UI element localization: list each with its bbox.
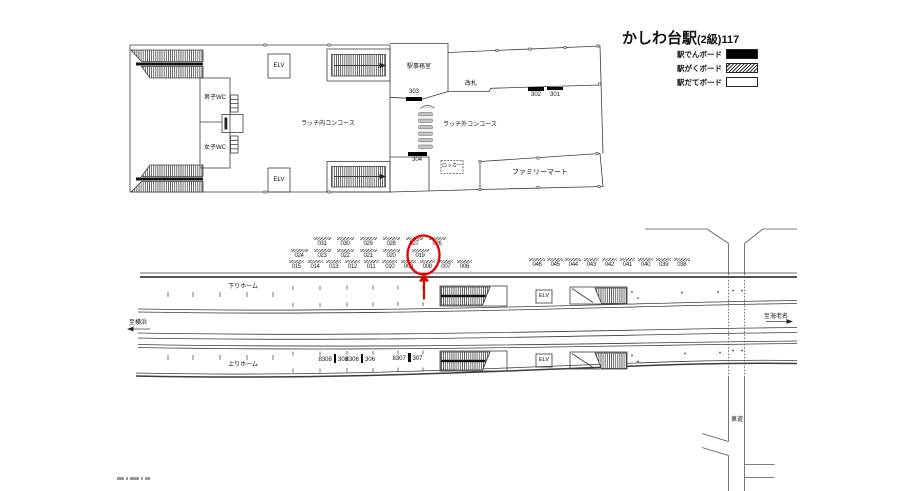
board-row-top: 031 030 029 028 027 026 — [311, 237, 449, 247]
hatched-board-swatch — [726, 63, 758, 73]
ad-board: 006 — [455, 260, 474, 270]
den-board-vertical — [361, 354, 364, 363]
den-board-304-label: 304 — [412, 157, 422, 163]
ad-board: 028 — [380, 237, 403, 247]
legend: 駅でんボード 駅がくボード 駅だてボード — [620, 47, 758, 89]
ad-board: 038 — [673, 258, 691, 268]
pillar-ticks — [168, 351, 423, 373]
station-name: かしわ台駅 — [622, 30, 697, 47]
ad-board: 010 — [380, 260, 399, 270]
legend-label: 駅がくボード — [677, 63, 722, 74]
ad-board: 012 — [343, 260, 362, 270]
ad-board: 011 — [362, 260, 381, 270]
up-platform-edge — [138, 341, 797, 346]
pillar-board-label: 8308 — [319, 357, 332, 363]
up-platform-edge — [138, 344, 797, 349]
escalator-icon — [570, 287, 627, 304]
open-board-swatch — [726, 77, 758, 87]
den-board-303-label: 303 — [409, 89, 419, 95]
to-ebina-arrow — [766, 319, 793, 324]
den-board-304 — [408, 152, 427, 156]
stairs-icon — [327, 49, 390, 81]
pillar-ticks — [168, 286, 423, 308]
ad-board: 043 — [582, 258, 600, 268]
ad-board: 030 — [334, 237, 357, 247]
pillar-board-label: 8306 — [346, 357, 359, 363]
board-row-middle: 024 023 022 021 020 019 — [288, 249, 432, 259]
ad-board: 008 — [418, 260, 437, 270]
pillar-board-label: 307 — [413, 356, 423, 362]
ad-board: 026 — [426, 237, 449, 247]
ad-board: 007 — [437, 260, 456, 270]
escalator-icon — [570, 352, 627, 369]
inner-concourse-label: ラッチ内コンコース — [301, 121, 355, 127]
pillar-dots — [631, 290, 743, 363]
womens-wc-label: 女子WC — [204, 145, 226, 151]
ad-board-highlighted: 019 — [409, 249, 432, 259]
legend-item: 駅でんボード — [620, 47, 758, 61]
elevator-label: ELV — [274, 63, 285, 69]
wc-rooms — [200, 78, 243, 168]
ad-board: 009 — [399, 260, 418, 270]
solid-board-swatch — [726, 49, 758, 59]
ad-board: 027 — [403, 237, 426, 247]
ad-board: 024 — [288, 249, 311, 259]
elevator-label: ELV — [539, 358, 549, 364]
stairs-icon — [327, 162, 390, 193]
ad-board: 046 — [528, 258, 546, 268]
to-ebina-label: 至海老名 — [764, 314, 788, 320]
down-platform-label: 下りホーム — [228, 284, 258, 290]
board-row-bottom: 015 014 013 012 011 010 009 008 007 006 — [287, 260, 474, 270]
track-line — [138, 333, 797, 340]
locker-label: ロッカー — [442, 164, 462, 169]
ad-board: 015 — [287, 260, 306, 270]
up-platform-label: 上りホーム — [228, 362, 258, 368]
familymart-label: ファミリーマート — [512, 169, 568, 176]
outer-concourse-outline — [448, 46, 603, 154]
den-board-vertical — [408, 353, 411, 362]
den-board-303 — [406, 97, 422, 101]
stairs-icon — [440, 286, 507, 306]
ad-board: 029 — [357, 237, 380, 247]
den-board-302 — [528, 87, 544, 91]
ad-board: 044 — [564, 258, 582, 268]
outer-concourse-label: ラッチ外コンコース — [443, 122, 497, 128]
roadway-label: 車道 — [731, 417, 743, 423]
ad-board: 040 — [637, 258, 655, 268]
to-yokohama-arrow — [127, 327, 150, 332]
elevator-label: ELV — [274, 177, 285, 183]
ad-board: 045 — [546, 258, 564, 268]
legend-item: 駅だてボード — [620, 75, 758, 89]
pillar-board-label: 306 — [365, 357, 375, 363]
ad-board: 013 — [324, 260, 343, 270]
lower-room-wall — [390, 157, 480, 192]
ad-board: 020 — [380, 249, 403, 259]
fine-print — [117, 477, 150, 480]
legend-label: 駅だてボード — [677, 77, 722, 88]
station-office-label: 駅事務室 — [407, 64, 431, 70]
to-yokohama-label: 至横浜 — [129, 320, 147, 326]
station-grade: (2級)117 — [697, 34, 739, 46]
map-linework — [0, 0, 919, 491]
ad-board: 039 — [655, 258, 673, 268]
den-board-302-label: 302 — [531, 92, 541, 98]
board-row-right: 046 045 044 043 042 041 040 039 038 — [528, 258, 691, 268]
ad-board: 023 — [311, 249, 334, 259]
ticket-gate-label: 改札 — [465, 81, 477, 87]
ad-board: 031 — [311, 237, 334, 247]
den-board-301-label: 301 — [550, 92, 560, 98]
stairs-icon — [131, 50, 203, 78]
ad-board: 042 — [600, 258, 618, 268]
ad-board: 021 — [357, 249, 380, 259]
ad-board: 041 — [618, 258, 636, 268]
stairs-icon — [131, 165, 203, 192]
ad-board: 022 — [334, 249, 357, 259]
den-board-301 — [547, 87, 563, 91]
track-line — [138, 328, 797, 335]
legend-item: 駅がくボード — [620, 61, 758, 75]
ticket-gates-icon — [419, 105, 435, 148]
pillar-board-label: 8307 — [393, 356, 406, 362]
mens-wc-label: 男子WC — [204, 95, 226, 101]
station-board-map: { "legend": { "station_name": "かしわ台駅", "… — [0, 0, 919, 491]
ad-board: 014 — [306, 260, 325, 270]
den-board-vertical — [334, 354, 337, 363]
elevator-label: ELV — [539, 294, 549, 300]
legend-label: 駅でんボード — [677, 49, 722, 60]
page-title: かしわ台駅(2級)117 — [622, 27, 739, 48]
